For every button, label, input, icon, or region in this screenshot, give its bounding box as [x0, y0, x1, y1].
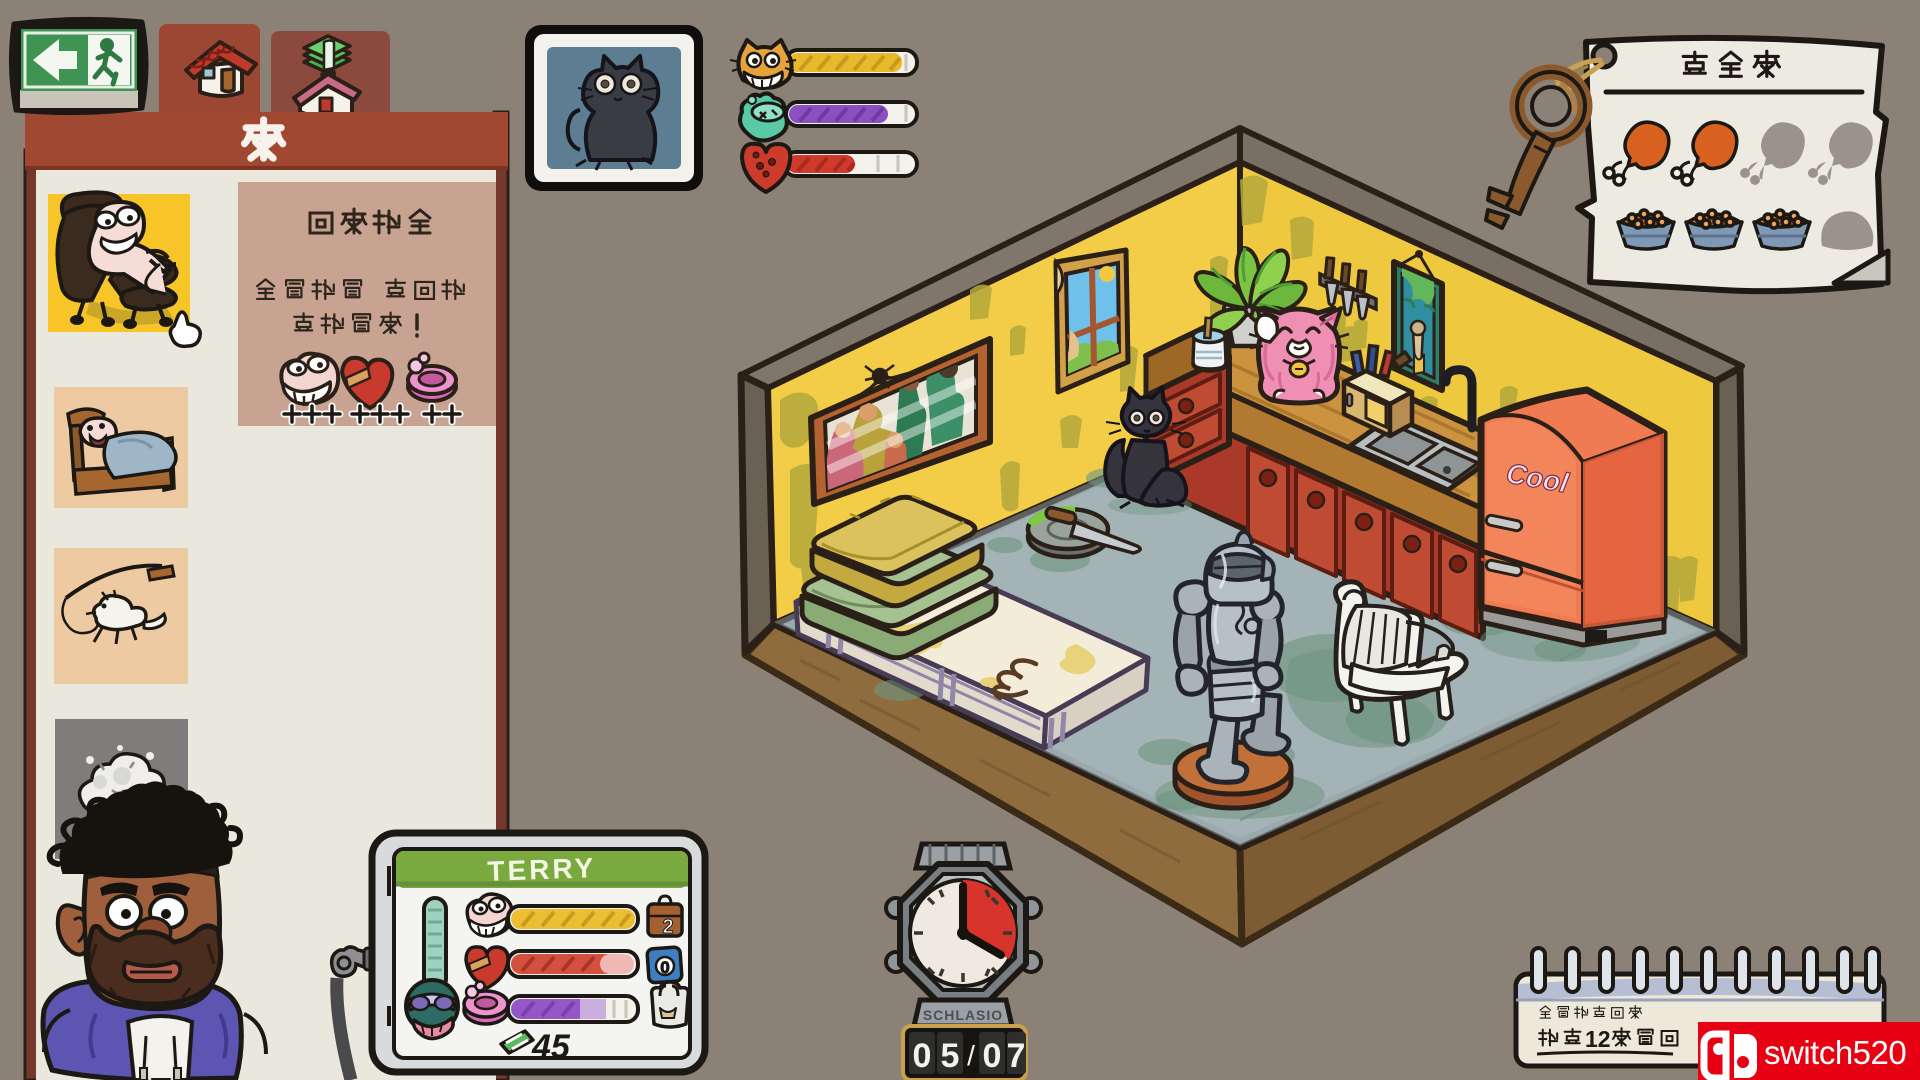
svg-text:switch520: switch520: [1764, 1034, 1906, 1071]
svg-text:/: /: [967, 1040, 975, 1071]
svg-text:5: 5: [941, 1037, 960, 1075]
svg-text:TERRY: TERRY: [487, 852, 597, 887]
svg-text:0: 0: [983, 1037, 1002, 1075]
svg-text:7: 7: [1007, 1037, 1026, 1075]
svg-text:2: 2: [662, 916, 673, 938]
svg-text:SCHLASIO: SCHLASIO: [923, 1007, 1003, 1023]
svg-text:45: 45: [531, 1028, 571, 1066]
svg-text:12: 12: [1585, 1026, 1611, 1052]
svg-text:0: 0: [913, 1037, 932, 1075]
svg-text:0: 0: [660, 958, 669, 977]
